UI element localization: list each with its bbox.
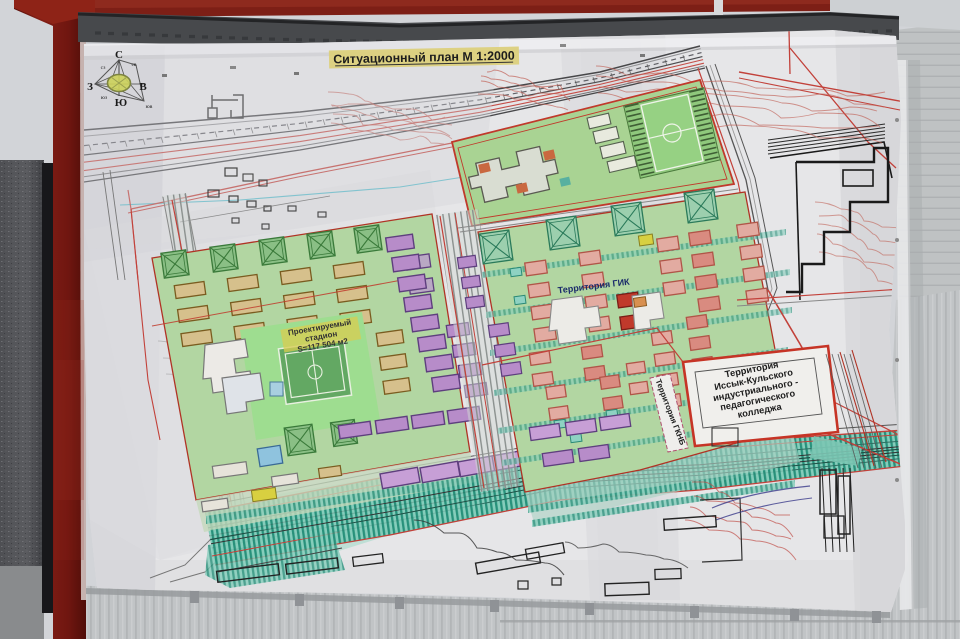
svg-text:сз: сз: [101, 65, 106, 71]
svg-text:св: св: [131, 62, 136, 68]
svg-text:юв: юв: [146, 104, 153, 110]
svg-text:В: В: [139, 81, 147, 93]
svg-text:Ю: Ю: [115, 97, 127, 109]
svg-text:З: З: [87, 81, 93, 93]
svg-text:С: С: [115, 49, 123, 61]
svg-text:юз: юз: [101, 95, 107, 101]
